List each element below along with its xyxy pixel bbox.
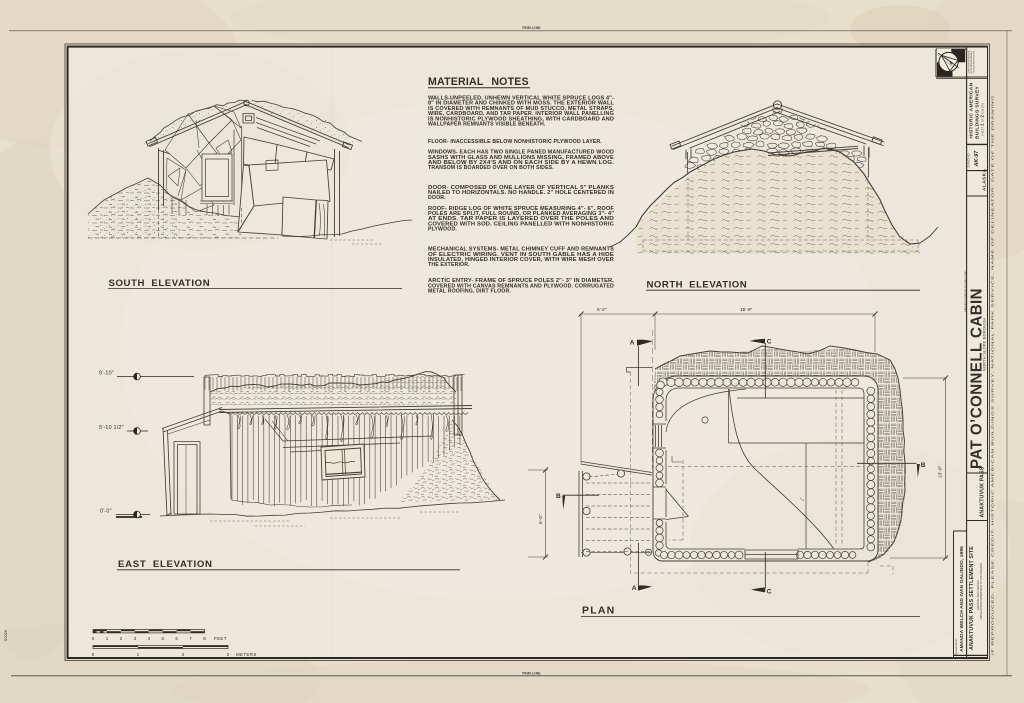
- svg-text:AK-97: AK-97: [974, 150, 980, 168]
- svg-text:METAL ROOFING, DIRT FLOOR.: METAL ROOFING, DIRT FLOOR.: [428, 289, 511, 295]
- svg-text:NORTH ELEVATION: NORTH ELEVATION: [647, 280, 748, 291]
- svg-text:METERS: METERS: [236, 652, 257, 657]
- svg-text:THE EXTERIOR.: THE EXTERIOR.: [428, 262, 470, 268]
- svg-text:PLAN: PLAN: [582, 605, 615, 617]
- svg-text:BUILDINGS SURVEY: BUILDINGS SURVEY: [974, 85, 980, 139]
- svg-text:NAME AND LOCATION OF STRUCTURE: NAME AND LOCATION OF STRUCTURE: [964, 271, 967, 312]
- svg-text:FLOOR- INACCESSIBLE BELOW NONH: FLOOR- INACCESSIBLE BELOW NONHISTORIC PL…: [428, 139, 602, 145]
- svg-text:TRANSOM IS BOARDED OVER ON BOT: TRANSOM IS BOARDED OVER ON BOTH SIDES.: [428, 165, 554, 171]
- svg-text:SOUTH ELEVATION: SOUTH ELEVATION: [109, 278, 211, 289]
- svg-text:UNITED STATES AND ALASKA OF: UNITED STATES AND ALASKA OF: [970, 50, 973, 74]
- svg-text:13′-0″: 13′-0″: [938, 465, 944, 478]
- svg-text:HISTORIC AMERICAN: HISTORIC AMERICAN: [969, 82, 975, 138]
- svg-text:B: B: [921, 462, 926, 469]
- svg-text:A: A: [630, 340, 635, 347]
- svg-text:ANAKTUVUK PASS SETTLEMENT SITE: ANAKTUVUK PASS SETTLEMENT SITE: [969, 546, 975, 650]
- svg-text:5′-10 1/2″: 5′-10 1/2″: [99, 425, 124, 431]
- svg-text:0′-0″: 0′-0″: [100, 509, 112, 515]
- svg-text:5′-2″: 5′-2″: [597, 307, 607, 313]
- svg-text:ANAKTUVUK PASS: ANAKTUVUK PASS: [979, 466, 985, 517]
- svg-text:N: N: [950, 61, 953, 65]
- svg-text:ALASKA: ALASKA: [981, 168, 987, 191]
- svg-text:NAILED TO HORIZONTALS. NO HAND: NAILED TO HORIZONTALS. NO HANDLE. 2″ HOL…: [428, 190, 614, 196]
- svg-text:TRIM LINE: TRIM LINE: [522, 26, 541, 30]
- svg-text:THE RECORDED STRUCTURE: THE RECORDED STRUCTURE: [974, 50, 976, 74]
- svg-text:IF REPRODUCED, PLEASE CREDIT:: IF REPRODUCED, PLEASE CREDIT: HISTORIC A…: [992, 95, 995, 655]
- svg-text:50026: 50026: [3, 629, 8, 641]
- svg-text:DOOR.: DOOR.: [428, 195, 446, 201]
- svg-text:15′-9″: 15′-9″: [740, 307, 753, 313]
- svg-text:C: C: [767, 338, 772, 345]
- svg-text:6′-0″: 6′-0″: [538, 514, 544, 524]
- svg-text:MATERIAL NOTES: MATERIAL NOTES: [428, 76, 529, 88]
- svg-text:C: C: [767, 588, 772, 595]
- svg-text:9′-10″: 9′-10″: [99, 371, 114, 377]
- svg-text:WALLPAPER REMNANTS VISIBLE BEN: WALLPAPER REMNANTS VISIBLE BENEATH.: [428, 122, 546, 128]
- svg-text:NORTH SLOPE BOROUGH: NORTH SLOPE BOROUGH: [983, 317, 987, 371]
- svg-text:DELINEATED BY:: DELINEATED BY:: [955, 638, 958, 656]
- svg-text:B: B: [556, 493, 561, 500]
- svg-text:A: A: [632, 585, 637, 592]
- svg-text:SURVEY NO.: SURVEY NO.: [967, 153, 970, 168]
- svg-text:PLYWOOD.: PLYWOOD.: [428, 227, 457, 233]
- svg-text:TRIM LINE: TRIM LINE: [522, 672, 541, 676]
- svg-text:LOCATION WITHIN THE CONTINENTA: LOCATION WITHIN THE CONTINENTAL: [967, 50, 970, 74]
- svg-text:EAST ELEVATION: EAST ELEVATION: [118, 559, 213, 570]
- svg-text:UNITED STATES DEPARTMENT OF TH: UNITED STATES DEPARTMENT OF THE INTERIOR: [980, 563, 983, 620]
- svg-text:FEET: FEET: [214, 636, 227, 641]
- svg-text:AMANDA WELCH AND IVAN GALI: AMANDA WELCH AND IVAN GALINDO, 1995: [959, 546, 964, 652]
- svg-text:PAT O’CONNELL CABIN: PAT O’CONNELL CABIN: [968, 288, 985, 469]
